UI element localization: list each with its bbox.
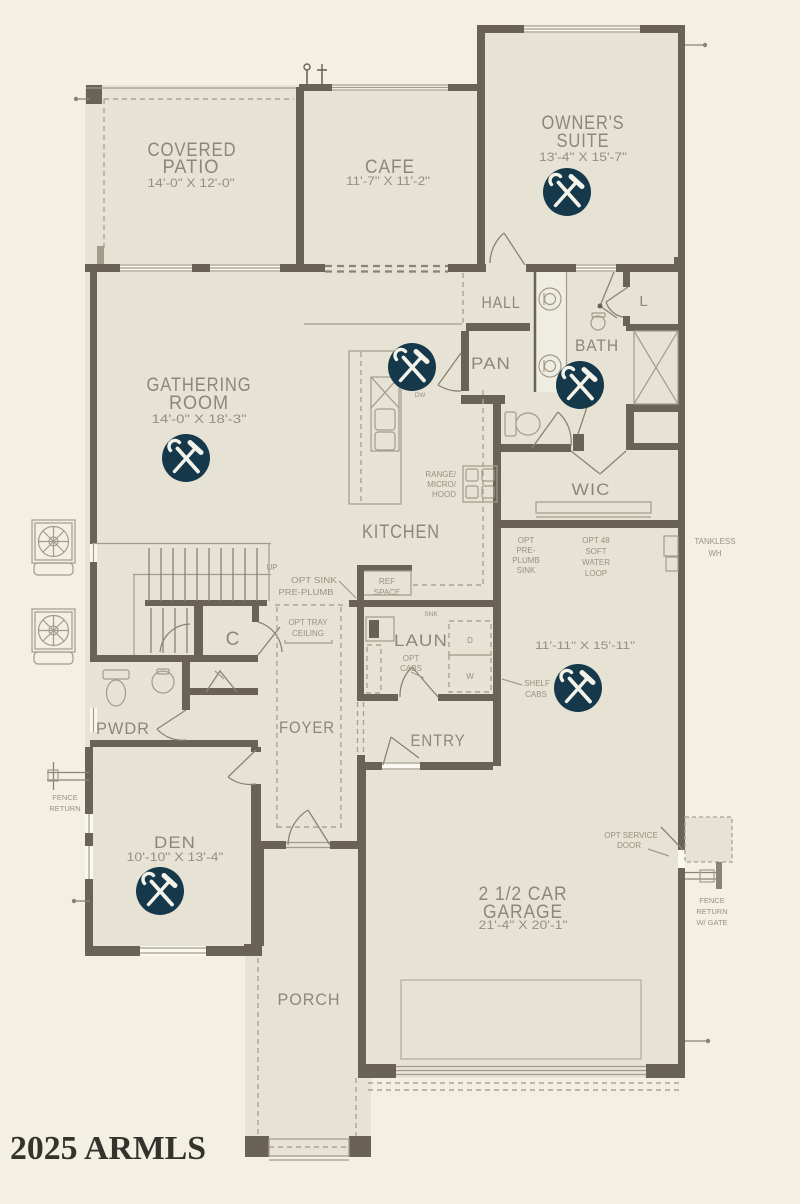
svg-text:PORCH: PORCH	[278, 990, 341, 1009]
svg-text:SUITE: SUITE	[557, 131, 610, 152]
svg-text:SOFT: SOFT	[585, 547, 606, 556]
svg-text:11'-11" X 15'-11": 11'-11" X 15'-11"	[535, 640, 635, 652]
svg-text:WIC: WIC	[572, 480, 611, 499]
svg-text:RETURN: RETURN	[49, 804, 80, 813]
svg-text:SPACE: SPACE	[374, 588, 401, 597]
svg-text:MICRO/: MICRO/	[427, 480, 457, 489]
svg-text:SINK: SINK	[517, 566, 536, 575]
svg-text:OPT TRAY: OPT TRAY	[288, 618, 328, 627]
svg-text:SHELF: SHELF	[524, 679, 550, 688]
svg-text:PAN: PAN	[471, 354, 511, 373]
svg-text:D: D	[467, 636, 473, 645]
svg-text:REF: REF	[379, 577, 395, 586]
svg-text:PATIO: PATIO	[163, 157, 220, 178]
svg-text:2025 ARMLS: 2025 ARMLS	[10, 1130, 206, 1167]
svg-text:W/ GATE: W/ GATE	[696, 918, 727, 927]
svg-text:10'-10" X 13'-4": 10'-10" X 13'-4"	[127, 850, 224, 864]
svg-text:FENCE: FENCE	[52, 793, 77, 802]
svg-text:PWDR: PWDR	[96, 719, 150, 738]
svg-text:L: L	[639, 293, 648, 310]
svg-text:ROOM: ROOM	[169, 393, 229, 414]
svg-text:FENCE: FENCE	[699, 896, 724, 905]
svg-text:OPT SINK: OPT SINK	[291, 576, 338, 585]
svg-text:W: W	[466, 672, 474, 681]
svg-text:13'-4" X 15'-7": 13'-4" X 15'-7"	[539, 150, 627, 164]
svg-text:14'-0" X 18'-3": 14'-0" X 18'-3"	[152, 412, 247, 426]
svg-text:OPT SERVICE: OPT SERVICE	[604, 831, 658, 840]
svg-text:PRE-: PRE-	[516, 546, 535, 555]
svg-text:14'-0" X 12'-0": 14'-0" X 12'-0"	[148, 176, 235, 190]
svg-text:21'-4" X 20'-1": 21'-4" X 20'-1"	[479, 918, 568, 932]
svg-text:CABS: CABS	[525, 690, 547, 699]
svg-text:DOOR: DOOR	[617, 841, 641, 850]
svg-text:PRE-PLUMB: PRE-PLUMB	[279, 588, 334, 597]
svg-text:HALL: HALL	[482, 293, 521, 312]
svg-text:OPT 48: OPT 48	[582, 536, 610, 545]
svg-text:OPT: OPT	[403, 654, 420, 663]
svg-text:RANGE/: RANGE/	[425, 470, 456, 479]
svg-text:HOOD: HOOD	[432, 490, 456, 499]
svg-text:OPT: OPT	[518, 536, 535, 545]
svg-text:RETURN: RETURN	[696, 907, 727, 916]
svg-text:CABS: CABS	[400, 664, 422, 673]
svg-text:UP: UP	[266, 563, 277, 572]
svg-text:WATER: WATER	[582, 558, 610, 567]
svg-text:BATH: BATH	[575, 336, 619, 355]
svg-text:KITCHEN: KITCHEN	[362, 522, 440, 543]
svg-text:DW: DW	[415, 392, 427, 399]
svg-text:WH: WH	[708, 549, 722, 558]
svg-text:PLUMB: PLUMB	[512, 556, 540, 565]
svg-text:LAUN: LAUN	[394, 631, 448, 650]
svg-text:SNK: SNK	[424, 611, 438, 618]
svg-text:CEILING: CEILING	[292, 629, 324, 638]
svg-text:TANKLESS: TANKLESS	[694, 537, 735, 546]
svg-text:C: C	[226, 629, 241, 650]
svg-text:ENTRY: ENTRY	[411, 731, 466, 750]
svg-text:11'-7" X 11'-2": 11'-7" X 11'-2"	[346, 174, 430, 188]
svg-text:FOYER: FOYER	[279, 718, 335, 737]
svg-text:LOOP: LOOP	[585, 569, 607, 578]
